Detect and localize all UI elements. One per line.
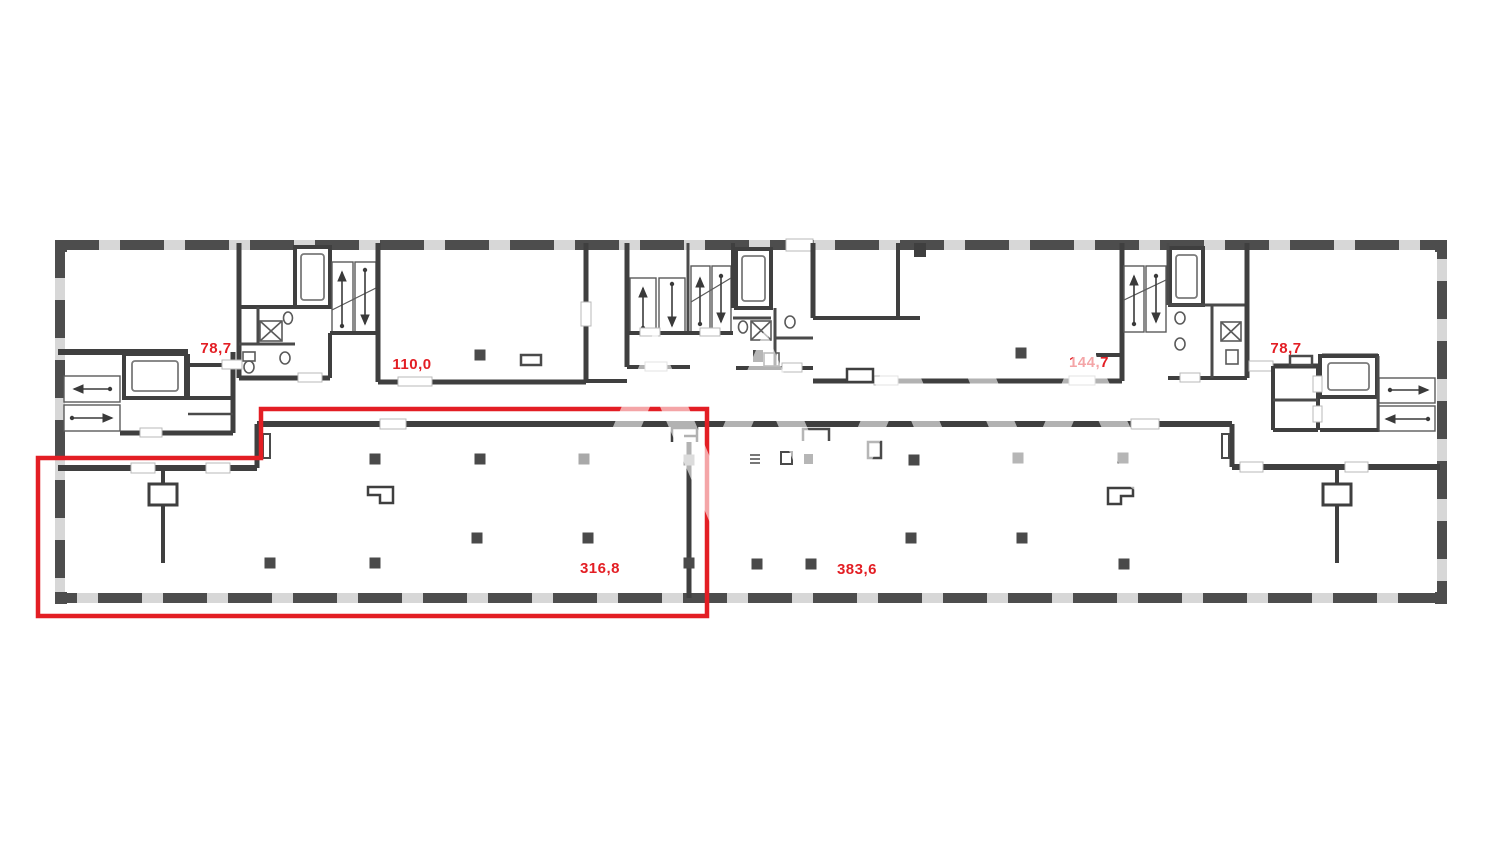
radiator [521, 355, 541, 365]
sink [1175, 312, 1185, 324]
column [370, 454, 381, 465]
area-label-room-110-0: 110,0 [392, 356, 431, 373]
column-wrap [1108, 488, 1133, 504]
corridor-walls [58, 419, 1440, 598]
column [475, 454, 486, 465]
corner-top-left [55, 240, 67, 252]
area-label-space-316-8: 316,8 [580, 560, 620, 577]
area-label-right-78-7: 78,7 [1270, 340, 1301, 357]
column [472, 533, 483, 544]
door-leaf [263, 434, 270, 458]
column [909, 455, 920, 466]
column [806, 559, 817, 570]
corner-bottom-right [1435, 592, 1447, 604]
area-label-left-78-7: 78,7 [200, 340, 231, 357]
column [1119, 559, 1130, 570]
core-right-end [1249, 355, 1435, 432]
sink [284, 312, 293, 324]
sink [1175, 338, 1185, 350]
sink [785, 316, 795, 328]
sink [280, 352, 290, 364]
wall-pier [914, 243, 926, 257]
column [1016, 348, 1027, 359]
stairs-right-center [1124, 266, 1166, 332]
shower [260, 321, 282, 341]
stairs-center-2 [691, 266, 731, 332]
floor-plan-svg: 78,7110,0144,778,7316,8383,6 [0, 0, 1500, 844]
corner-bottom-left [55, 592, 67, 604]
column [265, 558, 276, 569]
door-leaf [1222, 434, 1229, 458]
corner-top-right [1435, 240, 1447, 252]
stairs-left-end [64, 376, 120, 431]
entrance-opening [786, 239, 813, 251]
stairs-right-end [1379, 378, 1435, 431]
toilet [1226, 350, 1238, 364]
stairs-center-1 [630, 278, 685, 332]
toilet [243, 352, 255, 361]
column [752, 559, 763, 570]
column [1017, 533, 1028, 544]
core-left-center [186, 243, 378, 382]
shower [1221, 322, 1241, 341]
radiator [1290, 356, 1312, 365]
column [906, 533, 917, 544]
column-wrap [368, 487, 393, 503]
core-right-center [1096, 243, 1247, 382]
area-label-space-383-6: 383,6 [837, 561, 877, 578]
floor-plan-page: 78,7110,0144,778,7316,8383,6 [0, 0, 1500, 844]
column [579, 454, 590, 465]
column [583, 533, 594, 544]
column [684, 558, 695, 569]
highlight-outline [38, 409, 707, 616]
sink [739, 321, 748, 333]
column [370, 558, 381, 569]
core-center [627, 243, 1122, 385]
duct [847, 369, 873, 382]
column [475, 350, 486, 361]
stairs-left-center [332, 262, 376, 333]
